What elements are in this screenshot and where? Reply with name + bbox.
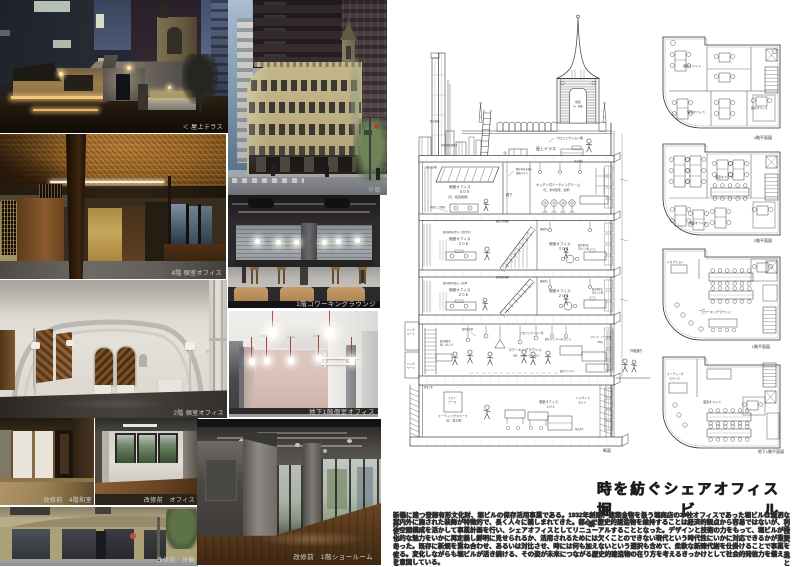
- svg-text:個室オフィス: 個室オフィス: [689, 220, 707, 225]
- svg-text:ミーティングスペース: ミーティングスペース: [438, 413, 467, 418]
- svg-text:個室オフィス: 個室オフィス: [539, 399, 558, 404]
- svg-text:（元：加工場）: （元：加工場）: [444, 419, 464, 423]
- svg-text:コワーキングラウンジ: コワーキングラウンジ: [508, 347, 542, 352]
- svg-text:バック: バック: [407, 362, 415, 366]
- svg-text:防水改修: 防水改修: [430, 119, 440, 123]
- svg-text:外堀通り: 外堀通り: [630, 348, 643, 353]
- svg-text:キッチン付ミーティングルーム: キッチン付ミーティングルーム: [536, 182, 580, 187]
- svg-text:ブース: ブース: [448, 400, 456, 404]
- svg-text:（新設）: （新設）: [596, 340, 604, 344]
- svg-text:活かした窓: 活かした窓: [592, 291, 604, 295]
- svg-text:個室オフィス: 個室オフィス: [683, 63, 701, 68]
- svg-text:現した仕上げ: 現した仕上げ: [440, 343, 454, 347]
- svg-text:３０６: ３０６: [458, 242, 469, 246]
- svg-text:塗装パネル: 塗装パネル: [516, 171, 529, 175]
- svg-text:ヤード: ヤード: [407, 332, 415, 336]
- svg-text:レセプション: レセプション: [667, 260, 684, 264]
- svg-text:断面: 断面: [603, 447, 611, 453]
- svg-text:個室オフィス: 個室オフィス: [715, 174, 733, 179]
- svg-text:ミーティング: ミーティング: [667, 372, 684, 376]
- svg-text:個室オフィス: 個室オフィス: [549, 241, 571, 246]
- svg-text:個室オフィス: 個室オフィス: [549, 288, 571, 293]
- svg-text:2階平面図: 2階平面図: [754, 237, 772, 243]
- svg-text:個室オフィス: 個室オフィス: [751, 106, 768, 110]
- svg-text:（元：米中邸宅、台所）: （元：米中邸宅、台所）: [541, 188, 572, 192]
- svg-text:既存カウンターを行かした: 既存カウンターを行かした: [545, 337, 571, 341]
- svg-text:1階平面図: 1階平面図: [752, 343, 770, 349]
- svg-text:スペース: スペース: [669, 377, 680, 381]
- svg-text:スタンダードテーブル: スタンダードテーブル: [590, 335, 611, 339]
- svg-text:個室オフィス: 個室オフィス: [687, 109, 705, 114]
- svg-text:既存カウンター: 既存カウンター: [560, 369, 575, 373]
- svg-text:プロジェクション等: プロジェクション等: [520, 331, 544, 335]
- svg-text:４０５: ４０５: [459, 190, 470, 194]
- svg-text:個室オフィス: 個室オフィス: [449, 184, 471, 189]
- svg-text:バック: バック: [407, 328, 415, 332]
- svg-text:コワーキングラウンジ: コワーキングラウンジ: [701, 309, 731, 314]
- svg-text:既存天井を現し: 既存天井を現し: [516, 167, 533, 171]
- svg-text:塔屋: 塔屋: [575, 100, 581, 104]
- svg-text:屋上テラス: 屋上テラス: [536, 145, 556, 151]
- svg-text:防湿工事: 防湿工事: [424, 385, 434, 389]
- svg-text:既存建具を活かした間仕切り: 既存建具を活かした間仕切り: [443, 230, 471, 234]
- svg-text:２０６: ２０６: [458, 293, 469, 297]
- svg-text:内装仕上げ更新: 内装仕上げ更新: [430, 205, 446, 209]
- svg-text:ライト: ライト: [578, 401, 587, 405]
- svg-text:個室貸し: 個室貸し: [540, 227, 549, 231]
- svg-text:廊下: 廊下: [506, 192, 513, 197]
- svg-text:個室オフィス: 個室オフィス: [703, 399, 721, 404]
- svg-text:個室貸し: 個室貸し: [540, 279, 549, 283]
- svg-text:既存瓦屋根: 既存瓦屋根: [426, 165, 438, 169]
- svg-text:既存躯体を: 既存躯体を: [440, 339, 451, 343]
- svg-text:採光井戸: 採光井戸: [575, 427, 585, 431]
- svg-text:既存家具を: 既存家具を: [578, 243, 589, 247]
- svg-text:（元：和室客間）: （元：和室客間）: [446, 194, 470, 199]
- svg-text:個室オフィス: 個室オフィス: [449, 236, 471, 241]
- svg-text:地下1階平面図: 地下1階平面図: [758, 448, 784, 454]
- svg-text:ハイサイド: ハイサイド: [576, 396, 590, 400]
- svg-text:既存照明を復元した照明: 既存照明を復元した照明: [443, 281, 468, 285]
- svg-text:プロジェクション等: プロジェクション等: [556, 135, 583, 140]
- svg-text:外壁改修塗替え: 外壁改修塗替え: [441, 143, 458, 147]
- svg-text:１０１: １０１: [546, 405, 555, 409]
- svg-text:ヤード: ヤード: [407, 366, 415, 370]
- svg-text:4階平面図: 4階平面図: [754, 134, 772, 140]
- svg-text:活かした机: 活かした机: [578, 247, 590, 251]
- svg-text:個室オフィス: 個室オフィス: [449, 287, 471, 292]
- svg-text:既存窓枠を: 既存窓枠を: [592, 287, 603, 291]
